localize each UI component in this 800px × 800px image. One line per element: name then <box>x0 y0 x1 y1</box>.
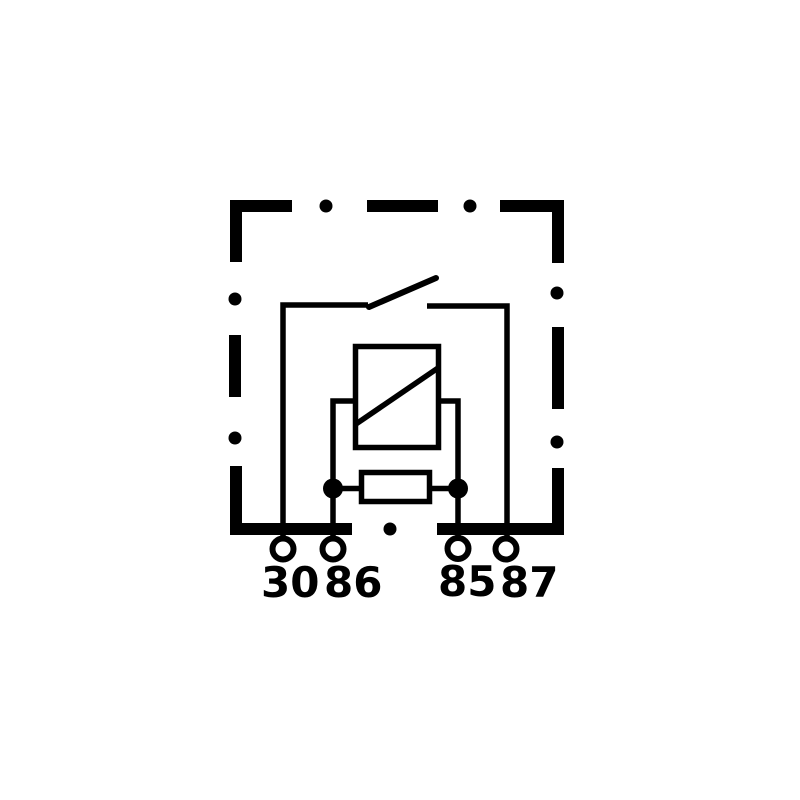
border-bottom-right-corner <box>437 468 558 529</box>
wire-coil-right-to-terminal85 <box>439 401 458 537</box>
border-top-dot-1 <box>320 200 333 213</box>
circuit-wiring <box>283 278 507 537</box>
schematic-svg: 30 86 85 87 <box>0 0 800 800</box>
border-top-left-corner <box>236 206 292 262</box>
terminal-label-86: 86 <box>324 558 382 607</box>
terminal-label-87: 87 <box>500 558 558 607</box>
terminal-circle-85 <box>448 538 469 559</box>
border-bottom-dot <box>384 523 397 536</box>
border-left-dot-1 <box>229 293 242 306</box>
border-top-right-corner <box>500 206 558 263</box>
border-right-dot-2 <box>551 436 564 449</box>
terminal-circle-30 <box>273 539 294 560</box>
border-top-dot-2 <box>464 200 477 213</box>
housing-border-dots <box>229 200 564 536</box>
junction-dot-right <box>448 479 468 499</box>
resistor-symbol <box>362 473 430 502</box>
terminal-label-85: 85 <box>438 557 496 606</box>
wire-coil-left-to-terminal86 <box>333 401 355 537</box>
switch-blade <box>369 278 436 307</box>
terminal-circle-87 <box>496 539 517 560</box>
terminal-label-30: 30 <box>261 558 319 607</box>
border-right-dot-1 <box>551 287 564 300</box>
border-left-dot-2 <box>229 432 242 445</box>
junction-dot-left <box>323 479 343 499</box>
terminal-labels: 30 86 85 87 <box>261 557 558 607</box>
relay-circuit-diagram: 30 86 85 87 <box>0 0 800 800</box>
terminal-circle-86 <box>323 539 344 560</box>
coil-diagonal-line <box>356 368 438 424</box>
